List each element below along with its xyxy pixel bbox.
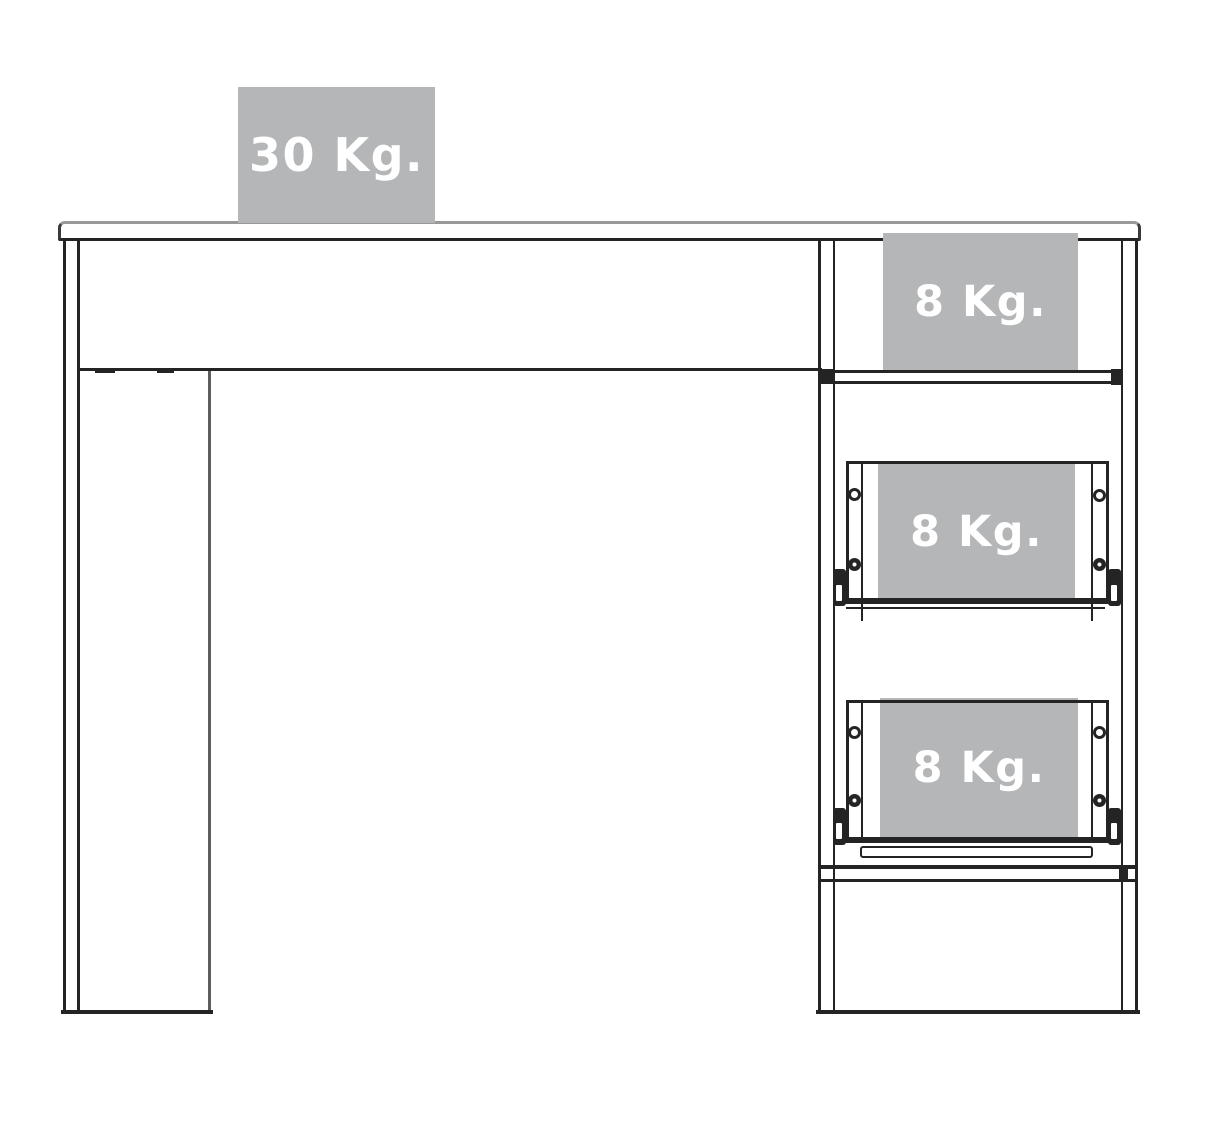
- apron-dowel-mark-left: [95, 370, 115, 373]
- upper-drawer-bottom-rail: [834, 598, 1118, 604]
- lower-drawer-screw-bottom-left: [848, 794, 861, 807]
- left-leg-bottom-edge: [61, 1010, 213, 1014]
- pedestal-bottom-edge: [816, 1010, 1140, 1014]
- desktop-load-label: 30 Kg.: [249, 128, 424, 182]
- open-shelf-load-badge: 8 Kg.: [883, 233, 1078, 370]
- lower-drawer-bottom-rail: [834, 837, 1118, 843]
- upper-drawer-inner-left-line: [861, 461, 863, 621]
- upper-drawer-screw-hole-top-left: [848, 488, 861, 501]
- upper-drawer-screw-hole-top-right: [1093, 489, 1106, 502]
- desktop-load-badge: 30 Kg.: [238, 87, 435, 223]
- pedestal-outer-right-edge: [1135, 239, 1138, 1014]
- apron-bottom-line: [78, 368, 822, 371]
- lower-drawer-slide-slot-left: [836, 823, 842, 839]
- lower-drawer-left-line: [846, 700, 849, 843]
- mid-rail-end-cap-right: [1119, 865, 1128, 882]
- pedestal-outer-left-edge: [818, 239, 821, 1014]
- open-shelf-load-label: 8 Kg.: [914, 277, 1047, 327]
- lower-drawer-load-badge: 8 Kg.: [880, 698, 1078, 837]
- lower-drawer-inner-right-line: [1091, 700, 1093, 843]
- upper-drawer-slide-slot-right: [1111, 585, 1117, 601]
- mid-rail-top-line: [820, 865, 1138, 869]
- upper-drawer-load-label: 8 Kg.: [910, 507, 1043, 557]
- upper-drawer-bottom-line: [846, 607, 1105, 609]
- left-leg-inner-edge: [77, 239, 80, 1014]
- shelf-top-line: [834, 370, 1122, 373]
- upper-drawer-screw-bottom-left: [848, 558, 861, 571]
- lower-drawer-screw-bottom-right: [1093, 794, 1106, 807]
- left-leg-outer-edge: [63, 239, 66, 1014]
- pedestal-inner-right-edge: [1121, 239, 1123, 1014]
- shelf-end-cap-right: [1111, 369, 1122, 385]
- upper-drawer-left-line: [846, 461, 849, 604]
- upper-drawer-screw-bottom-right: [1093, 558, 1106, 571]
- lower-drawer-screw-hole-top-right: [1093, 726, 1106, 739]
- apron-dowel-mark-right: [157, 370, 174, 373]
- upper-drawer-load-badge: 8 Kg.: [878, 464, 1075, 599]
- lower-drawer-inner-left-line: [861, 700, 863, 843]
- upper-drawer-top-line: [846, 461, 1109, 464]
- upper-drawer-slide-slot-left: [836, 585, 842, 601]
- lower-drawer-runner-tray: [860, 846, 1093, 858]
- shelf-bottom-line: [834, 381, 1122, 384]
- left-leg-right-edge: [208, 369, 211, 1014]
- upper-drawer-inner-right-line: [1091, 461, 1093, 621]
- lower-drawer-load-label: 8 Kg.: [913, 743, 1046, 793]
- pedestal-inner-left-edge: [833, 239, 835, 1014]
- lower-drawer-top-line: [846, 700, 1109, 703]
- lower-drawer-slide-slot-right: [1111, 823, 1117, 839]
- shelf-end-cap-left: [820, 369, 835, 384]
- mid-rail-bottom-line: [820, 879, 1138, 882]
- lower-drawer-screw-hole-top-left: [848, 726, 861, 739]
- furniture-load-diagram: 30 Kg. 8 Kg. 8 Kg. 8 Kg.: [0, 0, 1214, 1127]
